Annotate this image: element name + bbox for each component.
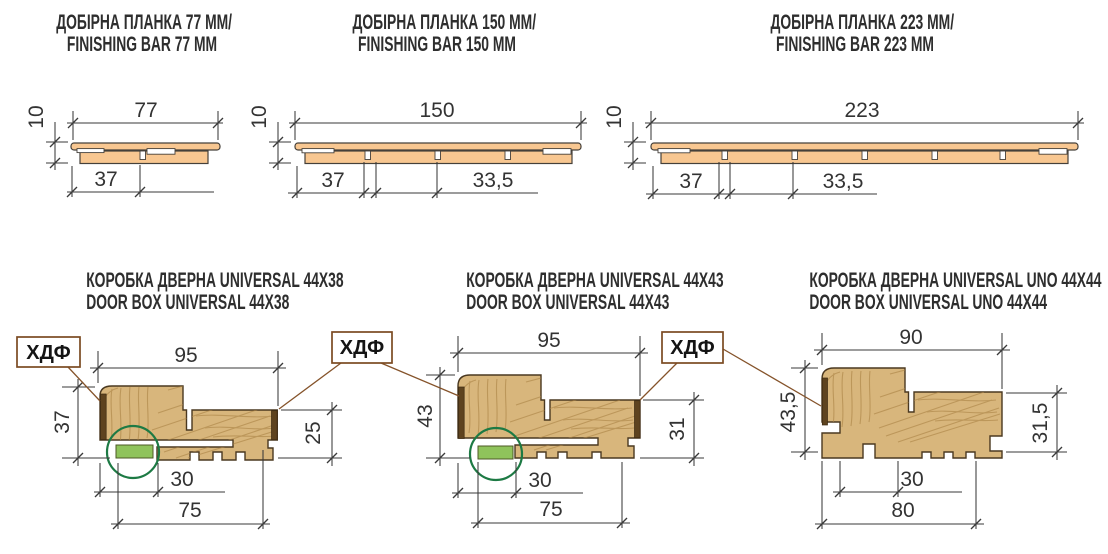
dimension-grooves: 37 33,5 — [288, 162, 538, 198]
dim-bottom-width-label: 75 — [178, 499, 201, 522]
dimension-right-31: 31 — [640, 392, 704, 466]
profile-223 — [651, 143, 1078, 164]
dim-top-width-label: 95 — [537, 329, 560, 352]
bar-77-diagram: 77 10 37 — [25, 99, 223, 197]
dim-groove-offset-label: 37 — [94, 168, 117, 191]
seal-gasket — [478, 446, 513, 459]
bar-223-diagram: 223 10 37 33,5 — [603, 99, 1084, 199]
dimension-right-25: 25 — [278, 402, 342, 466]
hdf-strip-right — [635, 401, 641, 438]
hdf-strip-left — [101, 394, 107, 440]
dimension-grooves: 37 33,5 — [646, 162, 877, 199]
dimension-thickness-10: 10 — [25, 105, 68, 170]
profile-top-strip — [295, 143, 581, 150]
dim-thickness-label: 10 — [25, 105, 48, 128]
dim-right-height-label: 31 — [666, 417, 689, 440]
dim-right-height-label: 25 — [302, 421, 325, 444]
dimension-groove-37: 37 — [67, 165, 214, 197]
dim-seal-offset-label: 30 — [170, 468, 193, 491]
dim-seal-offset-label: 30 — [528, 469, 551, 492]
door-box-44x43-diagram: 95 43 31 30 — [414, 329, 704, 528]
dim-groove-offset-label: 37 — [321, 169, 344, 192]
dim-bottom-width-label: 80 — [891, 499, 914, 522]
hdf-strip-left — [822, 378, 827, 425]
dim-left-height-label: 43,5 — [777, 392, 800, 433]
door-box-uno-44x44-diagram: 90 43,5 31,5 30 — [777, 326, 1067, 529]
dim-width-label: 77 — [134, 99, 157, 122]
catalog-page: ДОБІРНА ПЛАНКА 77 ММ/ FINISHING BAR 77 M… — [0, 0, 1108, 554]
hdf-callout-middle: ХДФ — [279, 332, 459, 409]
dim-bottom-width-label: 75 — [539, 498, 562, 521]
profile-150 — [295, 143, 581, 164]
dim-right-height-label: 31,5 — [1029, 403, 1052, 444]
hdf-label: ХДФ — [340, 337, 384, 359]
dim-seal-offset-label: 30 — [900, 468, 923, 491]
dimension-thickness-10: 10 — [248, 105, 291, 170]
bar-150-diagram: 150 10 37 33,5 — [248, 99, 587, 198]
dimension-thickness-10: 10 — [603, 105, 646, 170]
hdf-callout-left: ХДФ — [17, 337, 100, 401]
profile-top-strip — [651, 143, 1078, 150]
profile-77 — [71, 143, 220, 164]
dimension-seal-30: 30 — [833, 461, 962, 497]
dim-groove-spacing-label: 33,5 — [473, 169, 514, 192]
dimension-width-77: 77 — [67, 99, 223, 140]
dimension-left-43-5: 43,5 — [777, 360, 818, 460]
dim-groove-offset-label: 37 — [679, 170, 702, 193]
dim-top-width-label: 90 — [899, 326, 922, 349]
dimension-width-150: 150 — [289, 99, 587, 140]
seal-gasket — [116, 445, 153, 458]
dim-left-height-label: 37 — [51, 410, 74, 433]
dimension-right-31-5: 31,5 — [1006, 385, 1067, 460]
dim-width-label: 150 — [419, 99, 454, 122]
dim-thickness-label: 10 — [248, 105, 271, 128]
dim-left-height-label: 43 — [414, 404, 437, 427]
hdf-label: ХДФ — [670, 337, 714, 359]
door-box-44x38-diagram: 95 37 25 30 — [51, 344, 342, 529]
dim-groove-spacing-label: 33,5 — [823, 170, 864, 193]
dim-thickness-label: 10 — [603, 105, 626, 128]
dim-top-width-label: 95 — [174, 344, 197, 367]
hdf-strip-right — [272, 411, 278, 440]
technical-drawing: 77 10 37 — [0, 0, 1108, 554]
dimension-width-223: 223 — [645, 99, 1084, 140]
hdf-label: ХДФ — [26, 342, 70, 364]
dim-width-label: 223 — [844, 99, 879, 122]
hdf-strip-left — [459, 387, 465, 439]
